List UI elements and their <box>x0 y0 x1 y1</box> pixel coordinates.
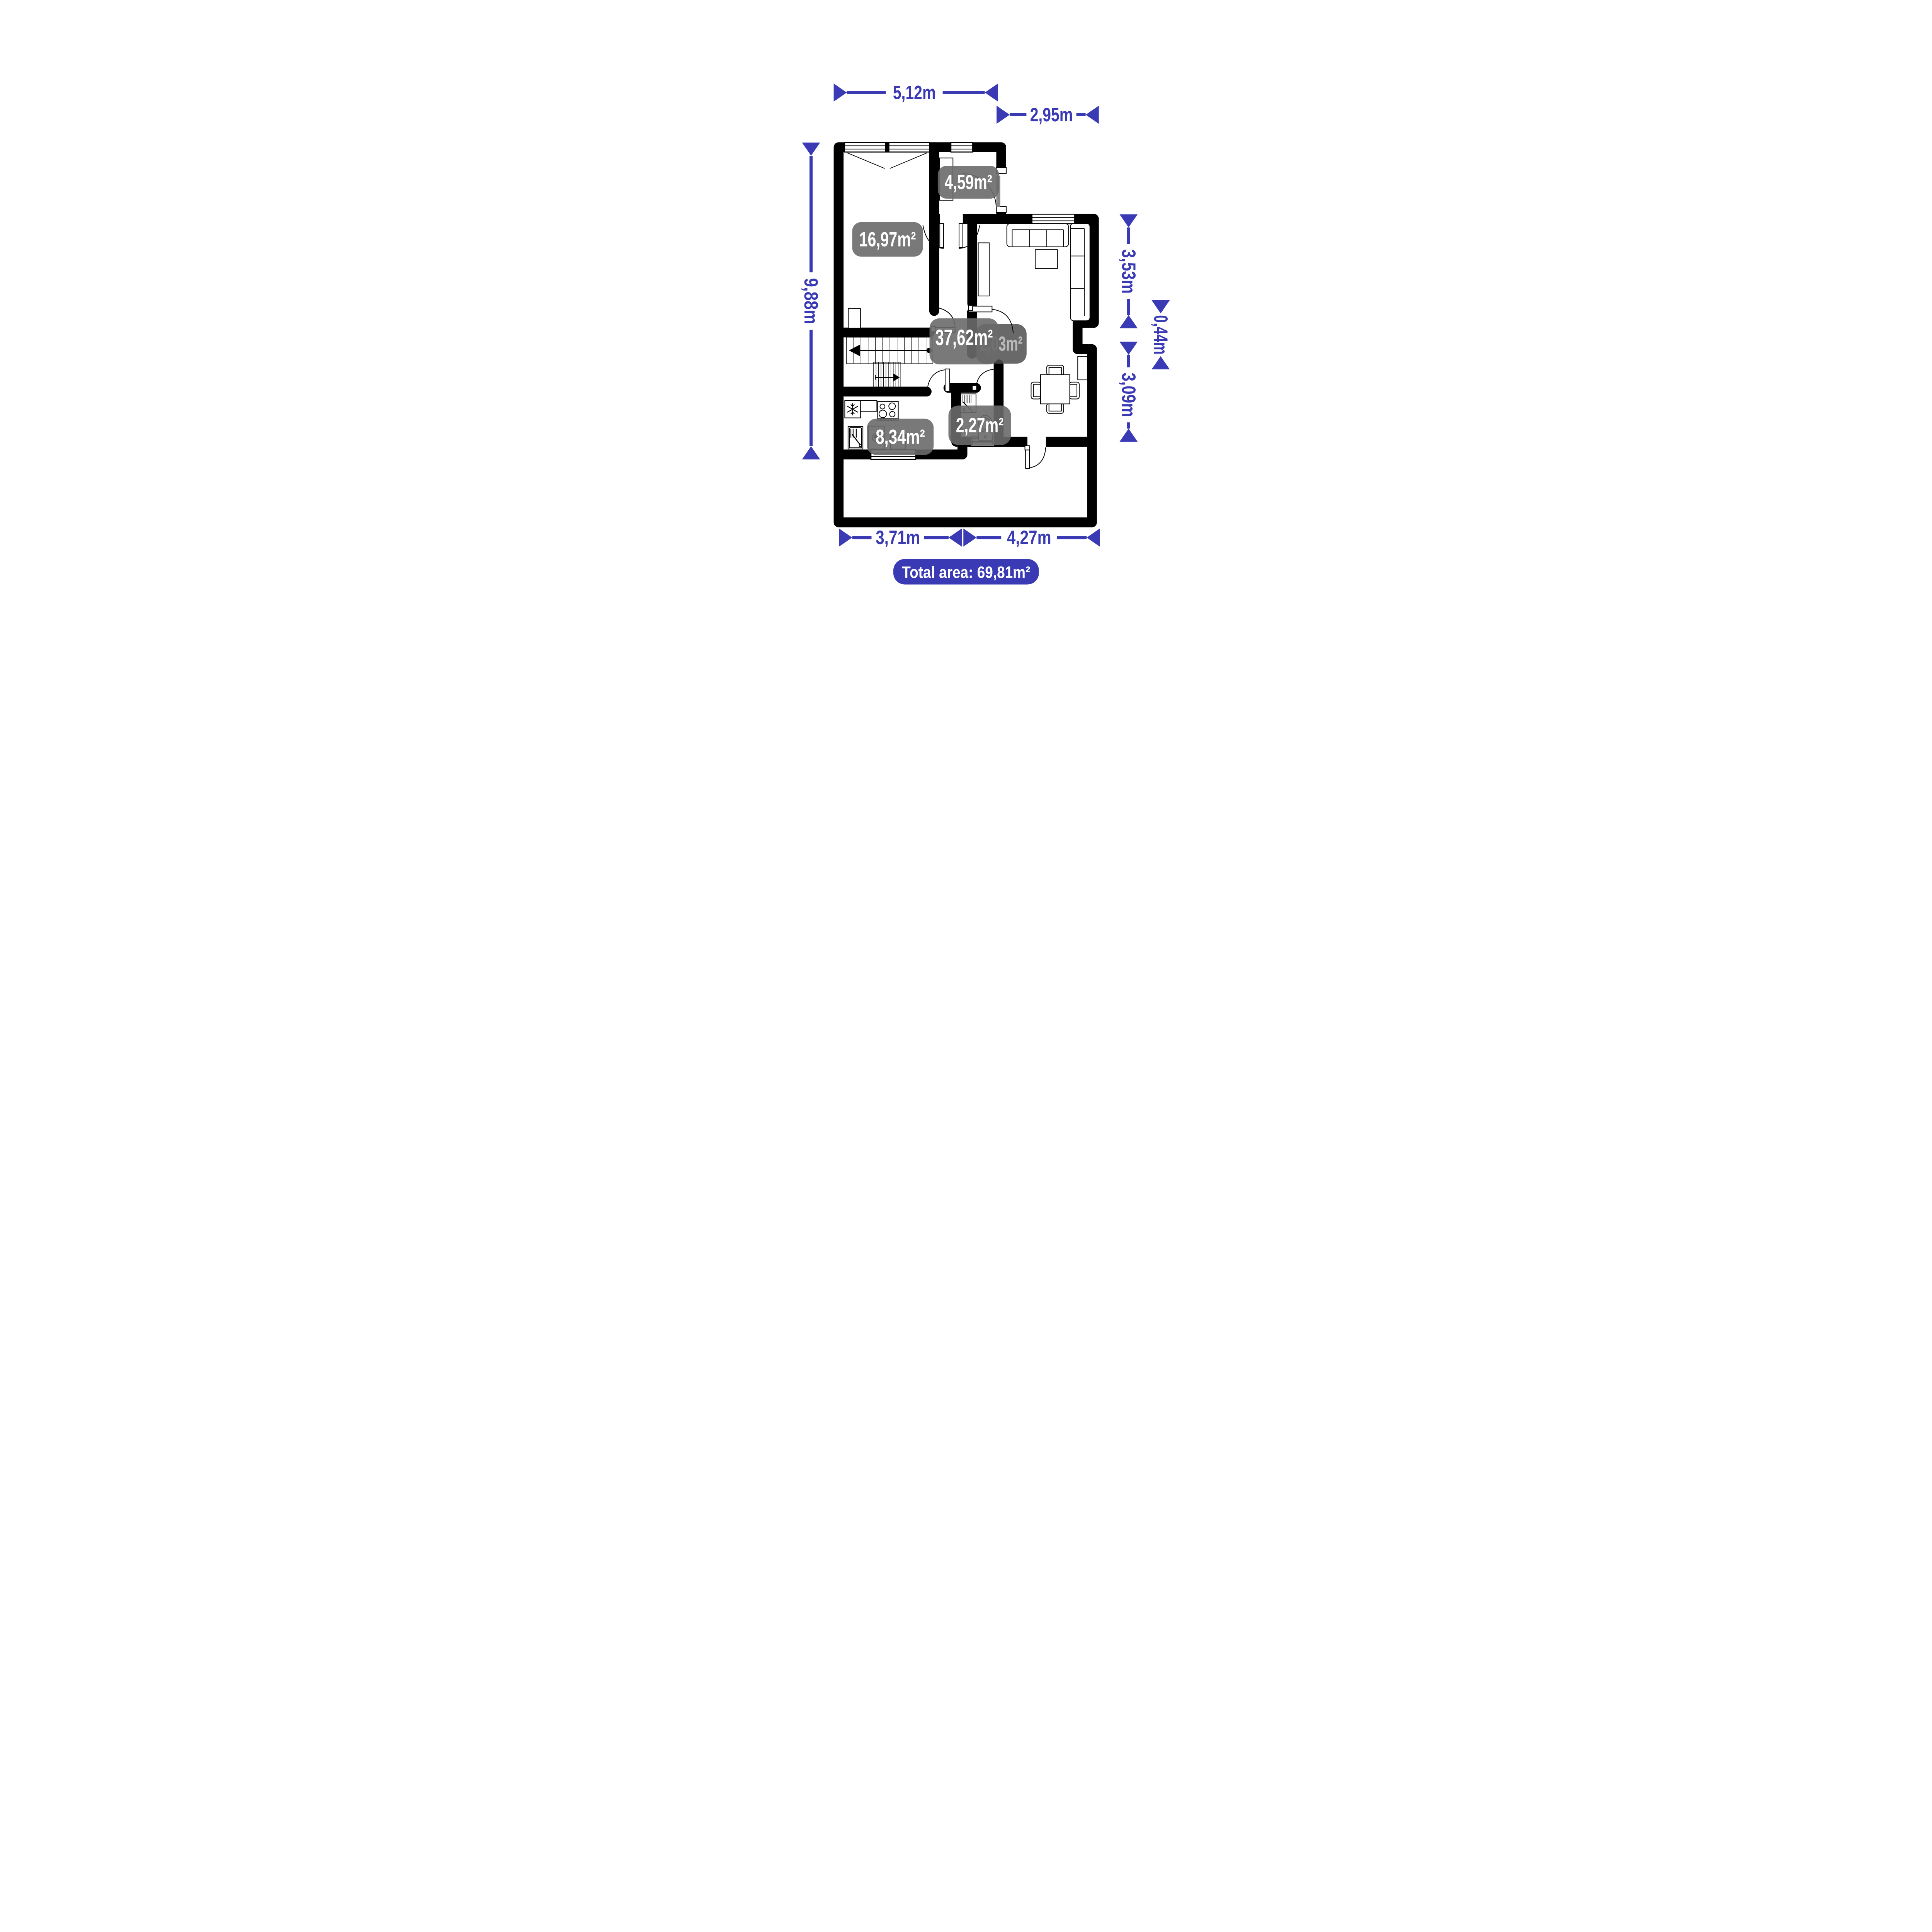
door-swing-arc-icon <box>927 370 945 391</box>
dimension-bottom-right: 4,27m <box>963 527 1100 548</box>
dimension-entry-value: 2,95m <box>1030 104 1073 126</box>
terrace-door <box>1025 437 1046 468</box>
dimension-arrow-icon <box>997 106 1010 124</box>
sofa <box>1007 223 1090 321</box>
dining-chair <box>1069 382 1079 399</box>
dining-chair <box>1031 382 1041 399</box>
dining-set <box>1031 365 1080 413</box>
dimension-right-lower: 3,09m <box>1118 342 1139 442</box>
dimension-arrow-icon <box>1119 429 1138 442</box>
upper-stair-flight <box>847 337 933 364</box>
dimension-bottom-left-value: 3,71m <box>876 527 920 548</box>
bathroom-label: 2,27m² <box>949 406 1011 445</box>
dimension-arrow-icon <box>802 143 820 156</box>
bathroom-area: 2,27m² <box>956 414 1003 437</box>
dimension-right-niche-value: 0,44m <box>1150 315 1172 354</box>
dimension-bottom-right-value: 4,27m <box>1007 527 1051 548</box>
dimension-entry: 2,95m <box>997 104 1099 126</box>
dimension-arrow-icon <box>985 83 998 102</box>
hallway-area: 4,59m² <box>944 171 992 194</box>
dimension-right-upper: 3,53m <box>1118 214 1139 328</box>
dimension-arrow-icon <box>1086 106 1099 124</box>
stair-direction-arrow-icon <box>893 374 900 381</box>
total-area-badge: Total area: 69,81m² <box>893 559 1039 585</box>
dining-chair <box>1047 365 1064 375</box>
living-shelf <box>978 243 990 296</box>
kitchen-area: 8,34m² <box>876 425 925 448</box>
living-room-door <box>968 305 992 312</box>
dimension-arrow-icon <box>834 83 847 102</box>
dining-chair <box>1047 403 1064 413</box>
dimension-bottom-left: 3,71m <box>839 527 962 548</box>
bedroom-window-icon <box>845 143 930 168</box>
living-room-label: 37,62m² <box>930 318 999 364</box>
living-room-area: 37,62m² <box>935 325 993 350</box>
stairs <box>847 337 933 392</box>
dimension-arrow-icon <box>839 529 852 547</box>
floor-plan-canvas: 2,03m² 37,62m² 16,97m² 4,59m² 8,34m² 2,2… <box>753 0 1179 601</box>
floor-plan-page: 2,03m² 37,62m² 16,97m² 4,59m² 8,34m² 2,2… <box>753 0 1179 601</box>
kitchen-door <box>927 369 950 391</box>
dimension-right-lower-value: 3,09m <box>1118 372 1139 417</box>
niche-cabinet <box>1078 356 1087 380</box>
hallway-label: 4,59m² <box>938 166 999 199</box>
dimension-arrow-icon <box>949 529 962 547</box>
dimension-arrow-icon <box>1151 300 1170 313</box>
dimension-arrow-icon <box>963 529 976 547</box>
bathroom-door <box>972 369 996 390</box>
dimension-right-upper-value: 3,53m <box>1118 249 1139 294</box>
dimension-arrow-icon <box>802 446 820 459</box>
dimension-top-value: 5,12m <box>893 82 936 103</box>
dimension-left-value: 9,88m <box>800 278 822 324</box>
kitchen-label: 8,34m² <box>867 419 934 455</box>
dimension-arrow-icon <box>1119 342 1138 355</box>
dimension-left: 9,88m <box>800 143 822 459</box>
bedroom-area: 16,97m² <box>859 228 916 251</box>
bedroom-nightstand <box>848 309 861 328</box>
dimension-arrow-icon <box>1119 315 1138 328</box>
bedroom-label: 16,97m² <box>852 222 923 257</box>
hallway-window-icon <box>951 143 973 152</box>
dimension-arrow-icon <box>1119 214 1138 228</box>
dimension-right-niche: 0,44m <box>1150 300 1172 369</box>
kitchen-sink-unit <box>848 427 863 449</box>
stair-direction-arrow-icon <box>849 345 860 356</box>
living-window-icon <box>1032 214 1075 224</box>
coffee-table <box>1035 250 1057 269</box>
stove <box>878 401 898 421</box>
total-area-text: Total area: 69,81m² <box>902 563 1030 582</box>
dining-table <box>1041 375 1070 404</box>
dimension-top: 5,12m <box>834 82 998 103</box>
kitchen-cabinet <box>861 401 877 412</box>
door-swing-arc-icon <box>1029 447 1046 468</box>
dimension-arrow-icon <box>1151 356 1170 369</box>
dimension-arrow-icon <box>1087 529 1100 547</box>
